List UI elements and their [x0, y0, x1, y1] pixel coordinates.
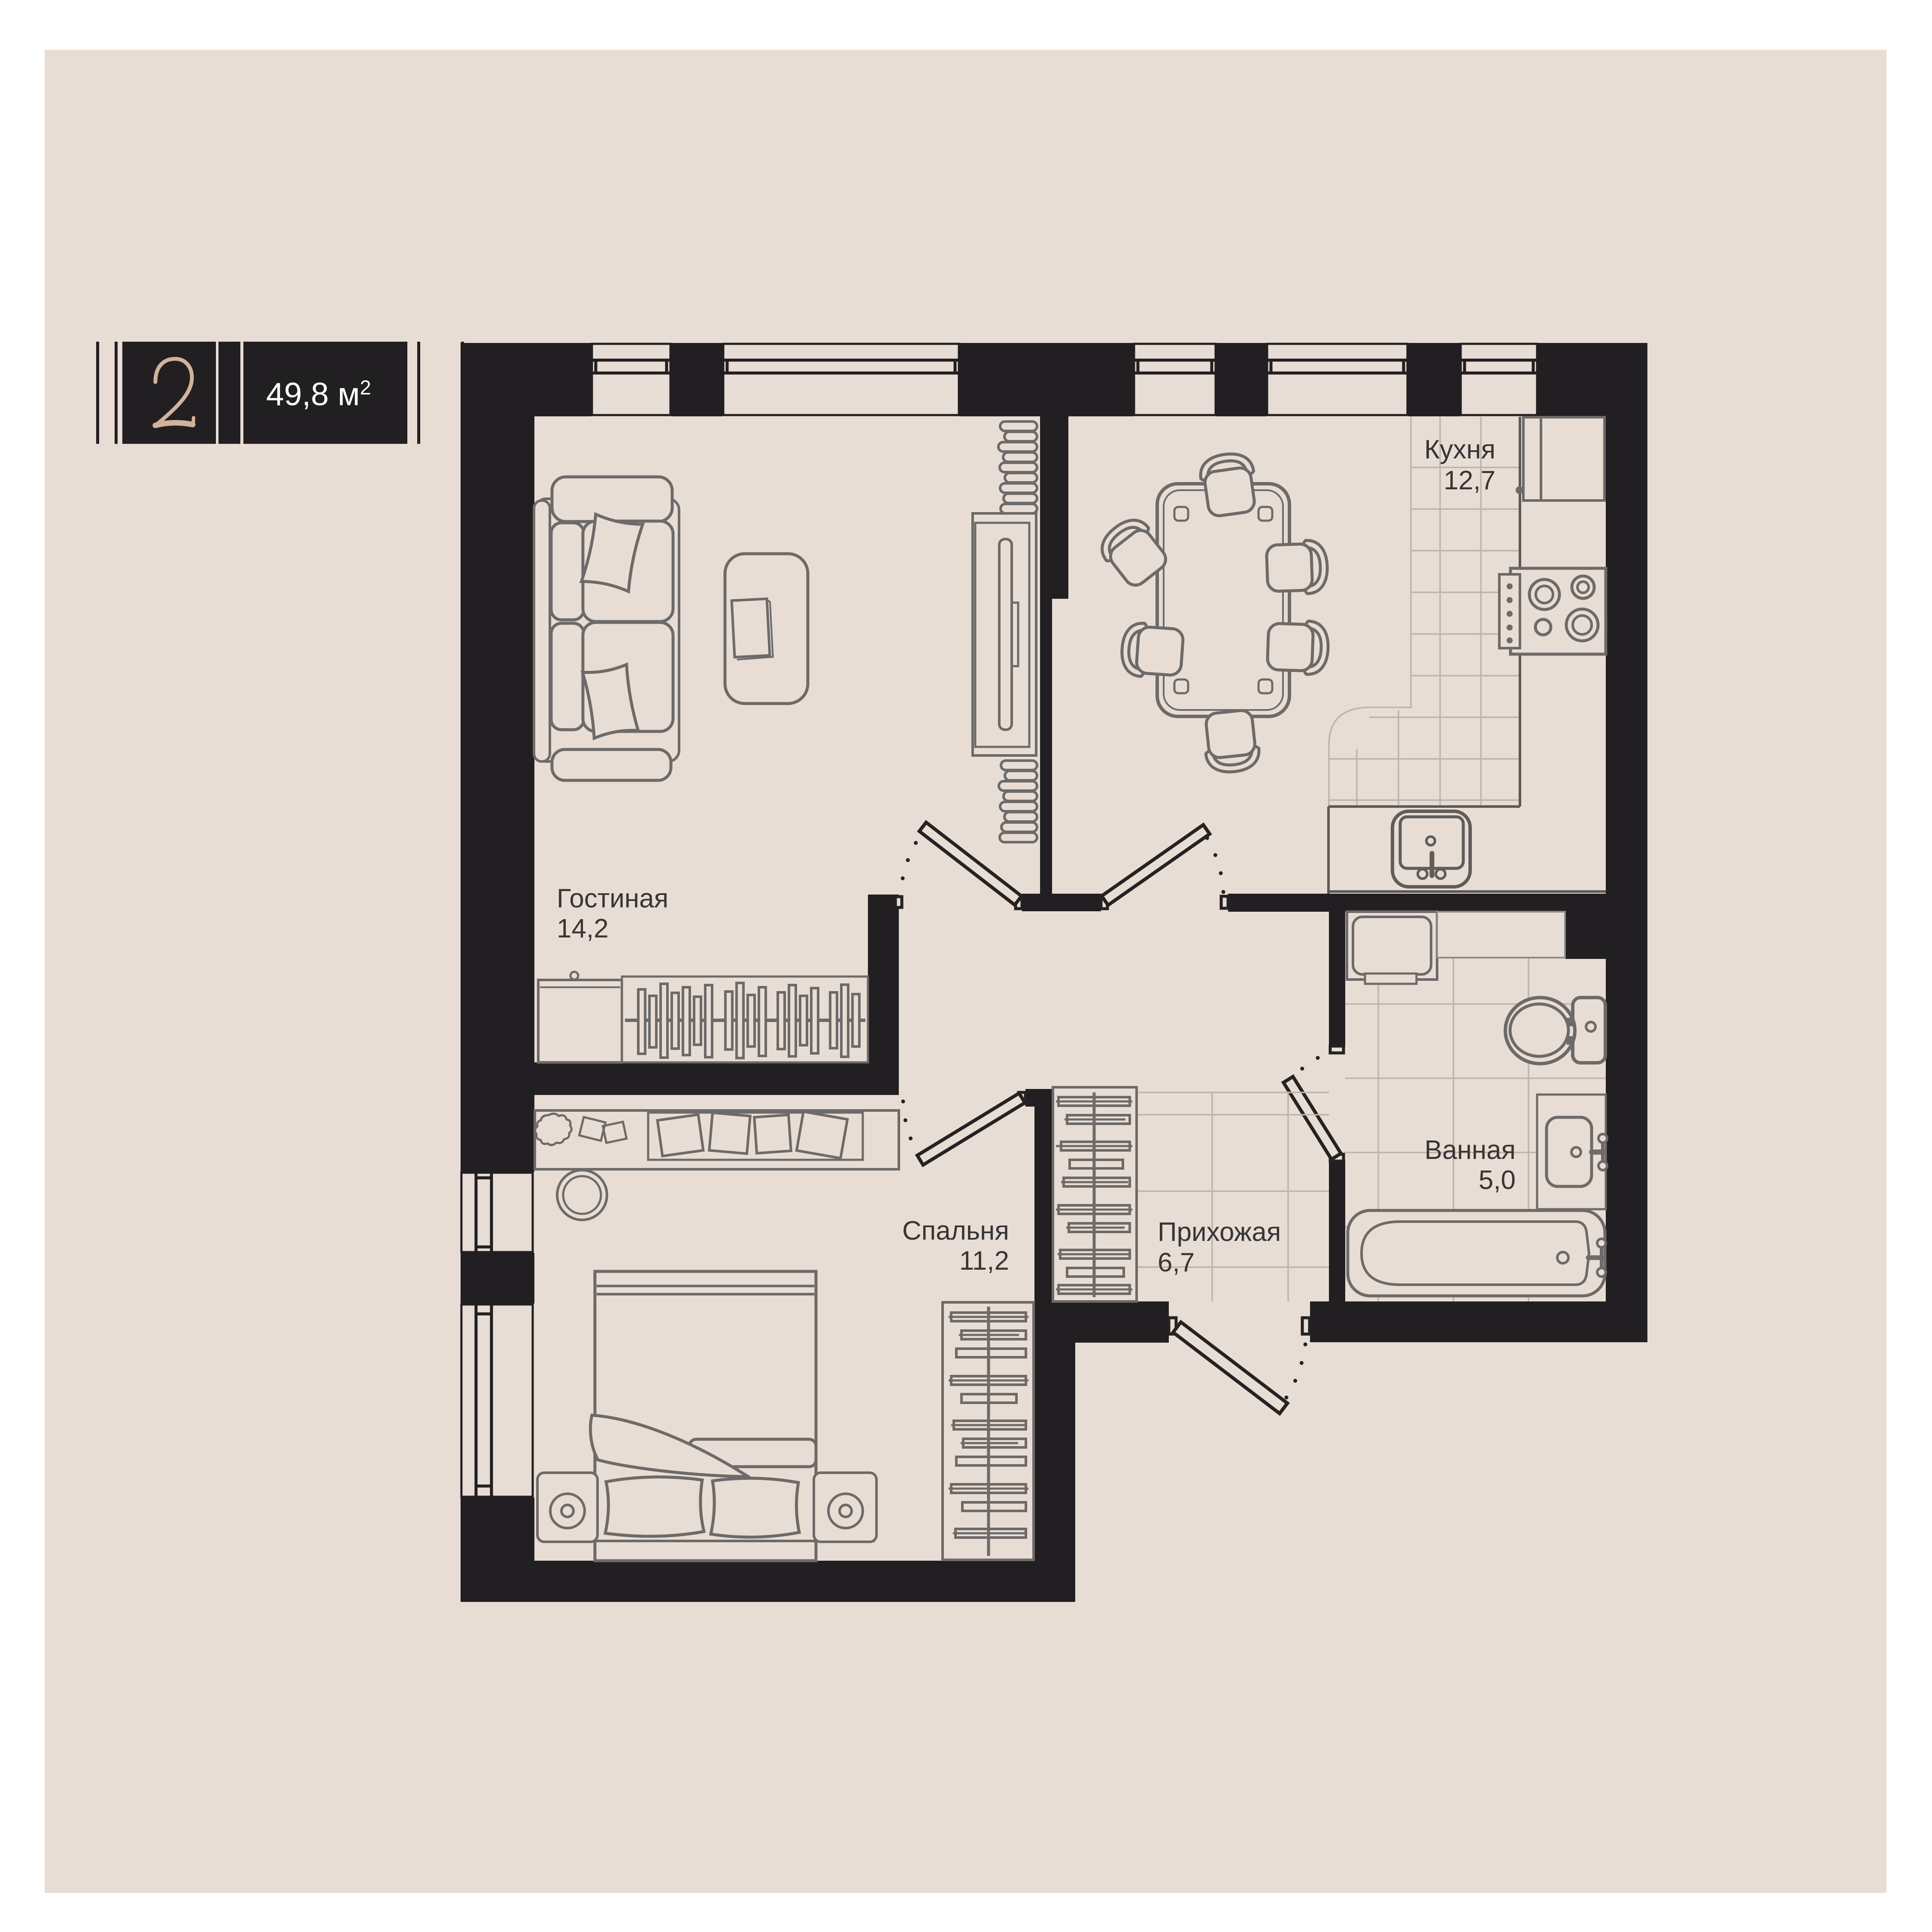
svg-text:12,7: 12,7: [1444, 466, 1495, 495]
svg-text:Спальня: Спальня: [902, 1216, 1009, 1246]
svg-text:49,8 м2: 49,8 м2: [266, 376, 371, 412]
svg-text:Ванная: Ванная: [1425, 1135, 1516, 1165]
svg-text:6,7: 6,7: [1158, 1248, 1195, 1277]
svg-text:11,2: 11,2: [959, 1246, 1009, 1276]
svg-text:14,2: 14,2: [557, 914, 609, 943]
svg-text:Прихожая: Прихожая: [1158, 1217, 1281, 1247]
svg-text:Гостиная: Гостиная: [557, 884, 668, 913]
svg-text:Кухня: Кухня: [1424, 435, 1495, 464]
svg-text:5,0: 5,0: [1479, 1165, 1516, 1195]
